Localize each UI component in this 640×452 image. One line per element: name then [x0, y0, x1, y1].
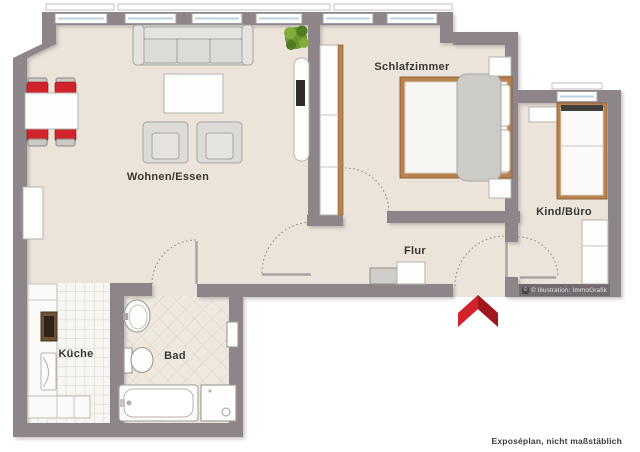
- bathtub: [119, 385, 198, 421]
- hall-dresser: [397, 262, 425, 284]
- radiator: [227, 322, 238, 347]
- tv-icon: [296, 80, 305, 106]
- watermark: © © Illustration: ImmoGrafik: [519, 284, 610, 296]
- armchair: [197, 122, 242, 163]
- sofa: [133, 25, 253, 65]
- copyright-badge-icon: ©: [522, 287, 529, 294]
- room-label-bath: Bad: [117, 350, 233, 362]
- dining-table: [25, 93, 78, 129]
- coffee-table: [164, 74, 223, 113]
- dining-chair: [27, 78, 48, 95]
- plant-icon: [284, 26, 309, 51]
- desk-cabinet: [582, 220, 608, 284]
- window: [557, 92, 597, 102]
- dining-chair: [27, 128, 48, 146]
- tv-board: [294, 58, 309, 161]
- window: [323, 14, 373, 24]
- single-bed: [557, 103, 607, 199]
- nightstand: [489, 57, 511, 76]
- room-label-living: Wohnen/Essen: [110, 171, 226, 183]
- dining-chair: [55, 128, 76, 146]
- window: [387, 14, 437, 24]
- nightstand: [489, 179, 511, 198]
- floorplan-page: Wohnen/Essen Schlafzimmer Kind/Büro Flur…: [0, 0, 640, 452]
- window: [192, 14, 242, 24]
- window: [55, 14, 107, 24]
- floorplan-graphic: [0, 0, 640, 452]
- footer-note: Exposéplan, nicht maßstäblich: [492, 436, 623, 446]
- room-label-bedroom: Schlafzimmer: [354, 61, 470, 73]
- wash-basin: [123, 300, 150, 332]
- wardrobe: [320, 45, 343, 215]
- armchair: [143, 122, 188, 163]
- shoe-cabinet: [370, 268, 397, 284]
- watermark-text: © Illustration: ImmoGrafik: [531, 287, 607, 294]
- sideboard: [23, 187, 43, 239]
- washing-machine: [201, 385, 236, 421]
- entrance-arrow-icon: [458, 295, 498, 327]
- room-label-hallway: Flur: [357, 245, 473, 257]
- room-label-kids-office: Kind/Büro: [506, 206, 622, 218]
- window: [125, 14, 176, 24]
- double-bed: [400, 74, 512, 181]
- dining-chair: [55, 78, 76, 95]
- window: [256, 14, 302, 24]
- shelf: [529, 107, 557, 122]
- stove: [41, 312, 57, 341]
